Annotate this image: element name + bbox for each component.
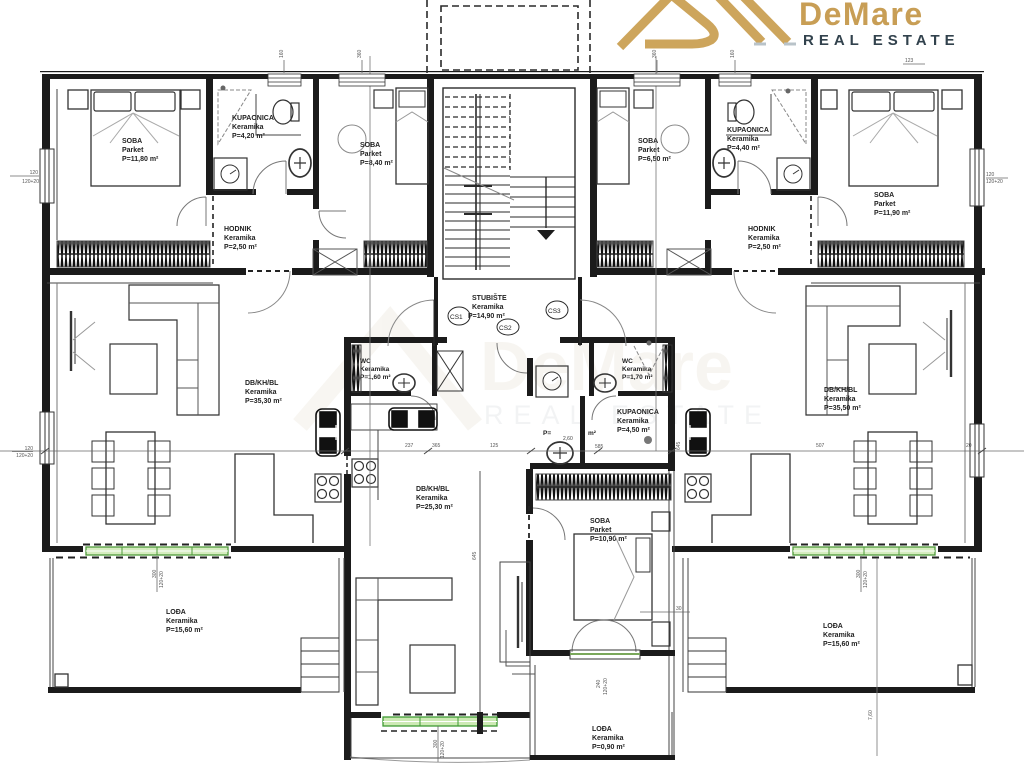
- svg-text:DB/KH/BL: DB/KH/BL: [824, 387, 858, 394]
- svg-text:LOĐA: LOĐA: [592, 726, 612, 733]
- svg-text:160: 160: [730, 49, 736, 58]
- svg-text:DeMare: DeMare: [799, 0, 924, 32]
- svg-text:LOĐA: LOĐA: [823, 623, 843, 630]
- svg-text:SOBA: SOBA: [638, 138, 658, 145]
- svg-text:Keramika: Keramika: [166, 618, 198, 625]
- svg-text:CS2: CS2: [499, 325, 512, 332]
- svg-text:7,60: 7,60: [868, 710, 874, 720]
- svg-text:120+20: 120+20: [22, 179, 39, 185]
- svg-text:P=11,80 m²: P=11,80 m²: [122, 156, 159, 163]
- svg-text:WC: WC: [360, 358, 371, 365]
- svg-text:Keramika: Keramika: [622, 366, 652, 373]
- svg-text:KUPAONICA: KUPAONICA: [232, 115, 274, 122]
- svg-text:Parket: Parket: [360, 151, 382, 158]
- svg-text:KUPAONICA: KUPAONICA: [617, 409, 659, 416]
- svg-text:645: 645: [676, 441, 682, 450]
- svg-text:P=15,60 m²: P=15,60 m²: [823, 641, 860, 648]
- svg-text:P=14,90 m²: P=14,90 m²: [468, 313, 505, 320]
- svg-text:CS1: CS1: [450, 314, 463, 321]
- svg-text:P=4,40 m²: P=4,40 m²: [727, 145, 761, 152]
- svg-text:Keramika: Keramika: [245, 389, 277, 396]
- svg-text:P=4,20 m²: P=4,20 m²: [232, 133, 266, 140]
- svg-text:120+20: 120+20: [159, 571, 165, 588]
- svg-text:Parket: Parket: [122, 147, 144, 154]
- svg-text:P=2,50 m²: P=2,50 m²: [224, 244, 258, 251]
- svg-text:DB/KH/BL: DB/KH/BL: [416, 486, 450, 493]
- svg-text:P=25,30 m²: P=25,30 m²: [416, 504, 453, 511]
- svg-text:HODNIK: HODNIK: [224, 226, 252, 233]
- svg-text:SOBA: SOBA: [122, 138, 142, 145]
- svg-text:KUPAONICA: KUPAONICA: [727, 127, 769, 134]
- svg-text:Keramika: Keramika: [224, 235, 256, 242]
- svg-text:120+20: 120+20: [603, 678, 609, 695]
- svg-text:Keramika: Keramika: [748, 235, 780, 242]
- svg-text:P=0,90 m²: P=0,90 m²: [592, 744, 626, 751]
- svg-text:Keramika: Keramika: [472, 304, 504, 311]
- svg-text:Keramika: Keramika: [232, 124, 264, 131]
- svg-text:P=35,30 m²: P=35,30 m²: [245, 398, 282, 405]
- svg-text:P=6,50 m²: P=6,50 m²: [638, 156, 672, 163]
- svg-text:Keramika: Keramika: [416, 495, 448, 502]
- svg-text:Keramika: Keramika: [823, 632, 855, 639]
- svg-text:P=35,50 m²: P=35,50 m²: [824, 405, 861, 412]
- svg-text:30: 30: [676, 606, 682, 612]
- svg-text:SOBA: SOBA: [874, 192, 894, 199]
- svg-text:HODNIK: HODNIK: [748, 226, 776, 233]
- svg-text:P=1,60 m²: P=1,60 m²: [360, 374, 391, 381]
- svg-text:2,60: 2,60: [563, 436, 573, 442]
- svg-text:507: 507: [816, 443, 825, 449]
- svg-text:237: 237: [405, 443, 414, 449]
- svg-text:P=4,50 m²: P=4,50 m²: [617, 427, 651, 434]
- svg-text:P=10,90 m²: P=10,90 m²: [590, 536, 627, 543]
- svg-text:P=: P=: [543, 430, 551, 437]
- svg-text:Parket: Parket: [638, 147, 660, 154]
- svg-text:120+20: 120+20: [986, 179, 1003, 185]
- svg-text:m²: m²: [588, 430, 597, 437]
- svg-text:P=11,90 m²: P=11,90 m²: [874, 210, 911, 217]
- svg-text:Parket: Parket: [590, 527, 612, 534]
- svg-text:WC: WC: [622, 358, 633, 365]
- svg-text:P=15,60 m²: P=15,60 m²: [166, 627, 203, 634]
- svg-text:120: 120: [986, 172, 995, 178]
- svg-text:240: 240: [596, 679, 602, 688]
- svg-text:REAL ESTATE: REAL ESTATE: [803, 32, 960, 49]
- svg-text:365: 365: [432, 443, 441, 449]
- svg-text:Keramika: Keramika: [727, 136, 759, 143]
- svg-text:585: 585: [595, 444, 604, 450]
- svg-text:Parket: Parket: [874, 201, 896, 208]
- svg-text:120: 120: [30, 170, 39, 176]
- svg-text:20: 20: [966, 443, 972, 449]
- svg-text:Keramika: Keramika: [617, 418, 649, 425]
- svg-text:SOBA: SOBA: [590, 518, 610, 525]
- svg-text:CS3: CS3: [548, 308, 561, 315]
- svg-text:P=2,50 m²: P=2,50 m²: [748, 244, 782, 251]
- svg-text:360: 360: [652, 49, 658, 58]
- svg-text:P=8,40 m²: P=8,40 m²: [360, 160, 394, 167]
- svg-text:Keramika: Keramika: [824, 396, 856, 403]
- svg-text:120+20: 120+20: [863, 571, 869, 588]
- svg-text:360: 360: [357, 49, 363, 58]
- svg-text:120+20: 120+20: [16, 453, 33, 459]
- svg-text:Keramika: Keramika: [360, 366, 390, 373]
- svg-text:120+20: 120+20: [440, 741, 446, 758]
- svg-text:645: 645: [472, 551, 478, 560]
- svg-text:Keramika: Keramika: [592, 735, 624, 742]
- svg-text:DB/KH/BL: DB/KH/BL: [245, 380, 279, 387]
- svg-text:123: 123: [905, 58, 914, 64]
- svg-text:LOĐA: LOĐA: [166, 609, 186, 616]
- svg-text:160: 160: [279, 49, 285, 58]
- svg-text:STUBIŠTE: STUBIŠTE: [472, 293, 507, 302]
- svg-text:125: 125: [490, 443, 499, 449]
